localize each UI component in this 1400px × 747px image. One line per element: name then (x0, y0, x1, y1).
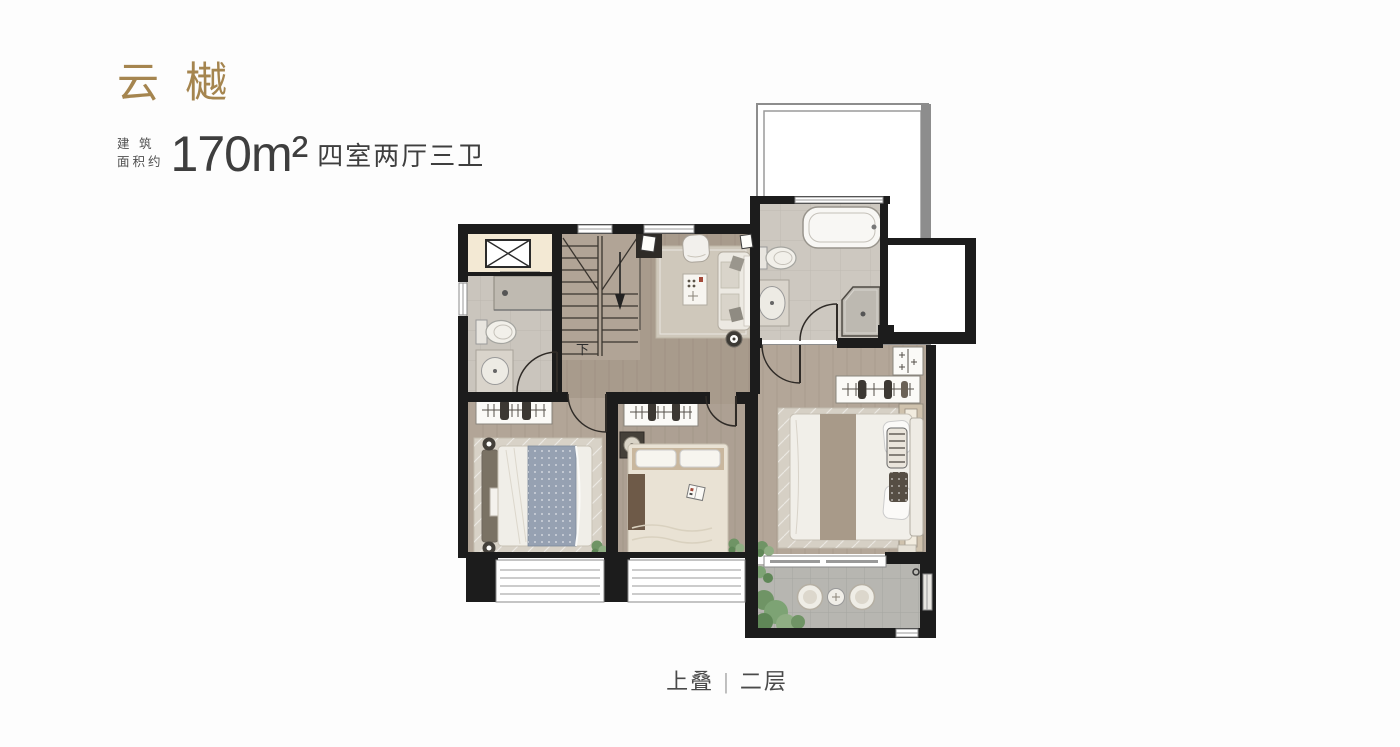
window (923, 574, 932, 610)
window (459, 283, 467, 315)
balcony-chair (798, 585, 823, 610)
stack-label: 上叠 (666, 669, 714, 694)
dresser (893, 347, 923, 375)
shower-icon (842, 287, 880, 336)
wall-lamp-icon (483, 438, 496, 451)
window (644, 225, 694, 233)
bed-master (790, 414, 923, 540)
window (578, 225, 612, 233)
stairs-down-label: 下 (576, 342, 589, 357)
armchair (682, 234, 710, 263)
bay-window (496, 560, 604, 602)
balcony-table (828, 589, 845, 606)
vent-icon (740, 234, 753, 248)
window (896, 629, 918, 637)
sofa (718, 252, 751, 330)
coffee-table (683, 274, 707, 305)
living-room (656, 234, 751, 347)
bathtub-icon (803, 207, 881, 248)
floor-lamp-icon (726, 331, 742, 347)
vent-icon (641, 235, 656, 252)
bay-window (628, 560, 745, 602)
wardrobe (836, 376, 920, 403)
bed-1 (482, 446, 592, 546)
floor-plan: 下 (0, 0, 1400, 747)
book (687, 484, 705, 500)
floor-caption: 上叠|二层 (54, 664, 1400, 696)
window (795, 197, 883, 203)
bed-2 (628, 444, 728, 556)
page: 云樾 建 筑 面积约 170m² 四室两厅三卫 (0, 0, 1400, 747)
balcony-chair (850, 585, 875, 610)
toilet-icon (757, 247, 796, 269)
sink-icon (755, 280, 789, 326)
floor-label: 二层 (740, 669, 788, 694)
caption-separator: | (714, 669, 740, 694)
toilet-icon (476, 320, 516, 344)
sliding-door (764, 556, 886, 567)
sink-icon (476, 350, 513, 394)
void-area (883, 238, 976, 344)
